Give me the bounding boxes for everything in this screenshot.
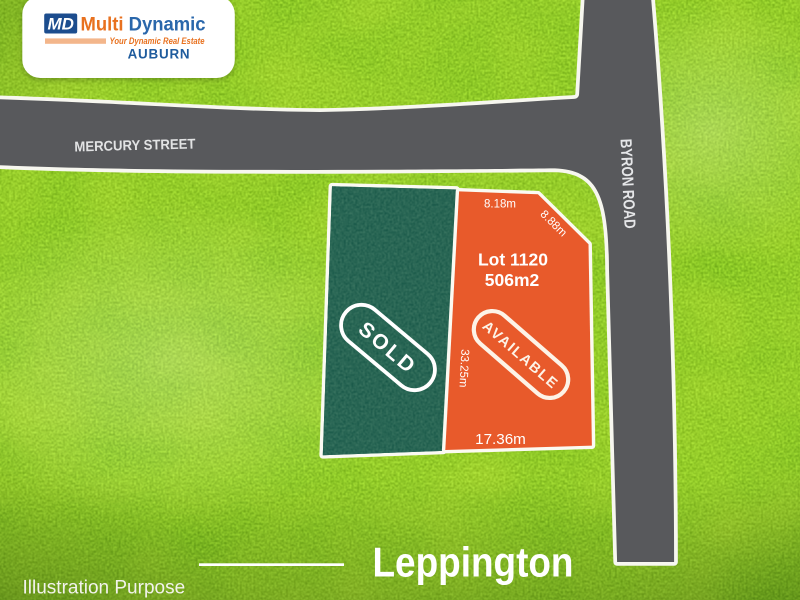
svg-text:Lot 1120: Lot 1120: [478, 250, 548, 270]
svg-text:MERCURY STREET: MERCURY STREET: [74, 137, 196, 156]
svg-text:AUBURN: AUBURN: [128, 47, 191, 62]
svg-text:MD: MD: [47, 15, 73, 34]
svg-text:Multi Dynamic: Multi Dynamic: [81, 14, 206, 36]
svg-text:Leppington: Leppington: [373, 539, 574, 586]
svg-text:506m2: 506m2: [485, 270, 540, 290]
svg-text:Illustration Purpose: Illustration Purpose: [23, 578, 186, 599]
svg-text:Your Dynamic Real Estate: Your Dynamic Real Estate: [110, 36, 206, 47]
svg-text:33.25m: 33.25m: [456, 349, 470, 388]
svg-text:17.36m: 17.36m: [475, 431, 526, 448]
svg-text:8.18m: 8.18m: [484, 199, 516, 211]
